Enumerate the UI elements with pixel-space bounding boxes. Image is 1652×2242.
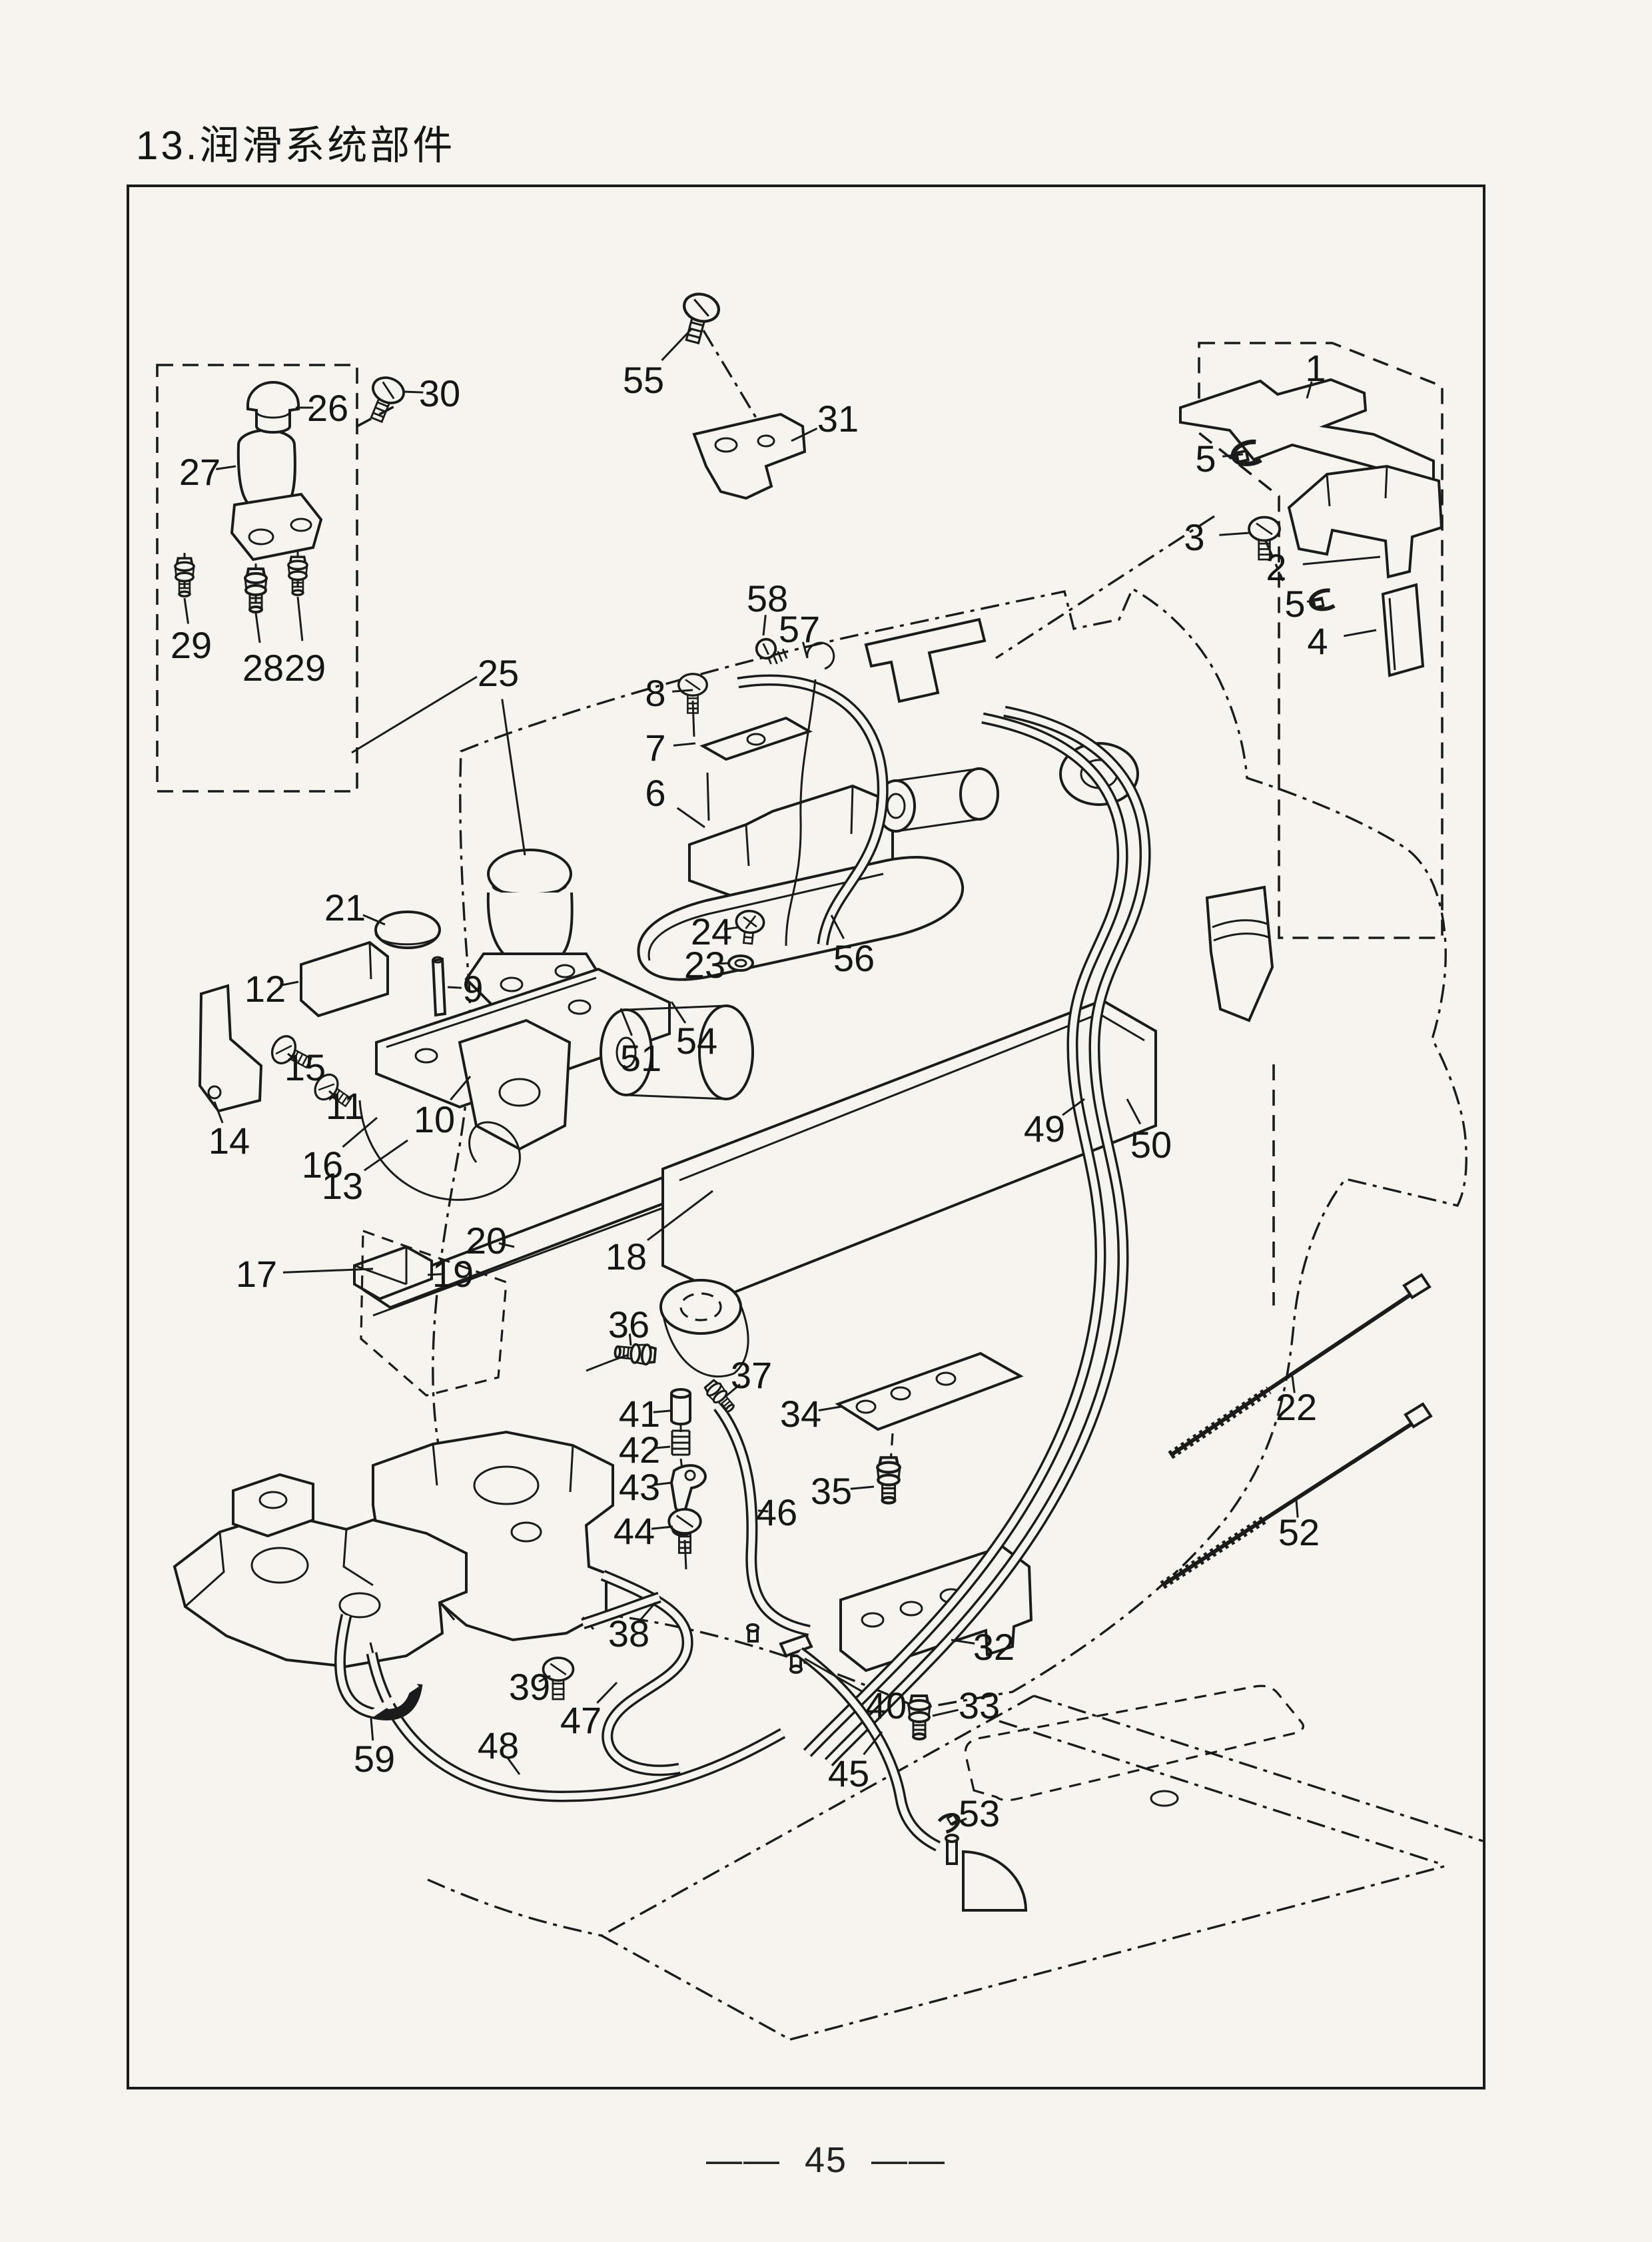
part-label-14: 14: [208, 1102, 250, 1162]
part-number-text: 7: [645, 727, 665, 769]
part-number-text: 45: [828, 1752, 869, 1794]
part-number-text: 32: [973, 1626, 1015, 1668]
part-number-text: 30: [419, 372, 460, 414]
part-label-11: 11: [326, 1085, 364, 1127]
spring-icon: [672, 1431, 689, 1455]
leader-line: [298, 597, 302, 641]
fitting-icon: [245, 569, 266, 612]
part-number-text: 21: [324, 887, 366, 929]
leader-line: [933, 1710, 959, 1716]
lever-31: [694, 414, 805, 498]
lever-43: [671, 1465, 705, 1511]
part-label-21: 21: [324, 887, 385, 929]
part-number-text: 14: [208, 1120, 250, 1162]
part-number-text: 20: [466, 1220, 507, 1262]
part-number-text: 46: [756, 1491, 797, 1533]
leader-line: [662, 329, 691, 360]
leader-line: [851, 1487, 874, 1489]
part-label-12: 12: [244, 968, 298, 1010]
part-number-text: 17: [236, 1253, 277, 1295]
part-number-text: 38: [608, 1613, 649, 1655]
part-label-53: 53: [951, 1792, 1000, 1834]
screw-slot-icon: [362, 373, 408, 426]
part-label-59: 59: [354, 1718, 395, 1780]
part-label-29: 29: [171, 598, 212, 666]
part-label-22: 22: [1276, 1376, 1317, 1428]
part-number-text: 8: [645, 672, 665, 714]
footer-rule-left: ——: [706, 2140, 781, 2180]
part-label-16: 16: [302, 1118, 377, 1186]
tube-clamp-bracket: [1207, 887, 1272, 1020]
leader-line: [448, 987, 462, 988]
part-label-39: 39: [509, 1666, 550, 1708]
part-label-26: 26: [296, 387, 348, 429]
part-label-6: 6: [645, 772, 705, 827]
part-number-text: 50: [1130, 1124, 1172, 1166]
leader-line: [1303, 557, 1380, 564]
part-number-text: 36: [608, 1304, 649, 1345]
part-label-54: 54: [671, 1002, 717, 1062]
part-number-text: 40: [865, 1684, 907, 1726]
footer-rule-right: ——: [871, 2140, 946, 2180]
part-number-text: 3: [1184, 516, 1204, 558]
fitting-icon: [877, 1457, 900, 1503]
part-number-text: 5: [1284, 583, 1305, 625]
part-number-text: 53: [959, 1792, 1000, 1834]
part-number-text: 35: [811, 1470, 852, 1512]
part-number-text: 24: [691, 911, 732, 952]
part-number-text: 34: [780, 1393, 821, 1435]
part-label-30: 30: [403, 372, 460, 414]
leader-line: [673, 743, 695, 745]
rod-22: [1170, 1275, 1430, 1455]
fitting-icon: [909, 1696, 930, 1739]
manual-page: 13.润滑系统部件: [0, 0, 1652, 2242]
part-number-text: 52: [1278, 1511, 1320, 1553]
part-label-37: 37: [726, 1354, 772, 1396]
leader-line: [256, 613, 260, 643]
part-label-46: 46: [756, 1491, 797, 1533]
part-label-27: 27: [179, 451, 236, 493]
leader-line: [677, 808, 705, 827]
part-number-text: 11: [326, 1085, 364, 1127]
part-number-text: 29: [284, 647, 326, 689]
part-label-43: 43: [619, 1466, 671, 1508]
part-number-text: 2: [1266, 546, 1286, 588]
part-label-17: 17: [236, 1253, 373, 1295]
part-number-text: 10: [414, 1098, 455, 1140]
part-number-text: 42: [619, 1429, 660, 1471]
part-number-text: 31: [817, 398, 859, 440]
part-label-9: 9: [448, 968, 484, 1010]
part-number-text: 22: [1276, 1386, 1317, 1428]
part-label-44: 44: [614, 1510, 673, 1552]
leader-line: [1344, 630, 1376, 636]
part-label-36: 36: [608, 1304, 649, 1345]
fitting-icon: [175, 558, 194, 596]
part-number-text: 25: [478, 652, 519, 694]
fitting-icon: [614, 1342, 655, 1365]
part-label-4: 4: [1307, 620, 1376, 662]
part-label-35: 35: [811, 1470, 874, 1512]
part-number-text: 15: [284, 1046, 326, 1088]
footer-number: 45: [805, 2140, 847, 2180]
part-number-text: 26: [307, 387, 348, 429]
part-label-7: 7: [645, 727, 695, 769]
parts-diagram: 1234556789101112131415161718192021222324…: [0, 0, 1652, 2242]
part-number-text: 59: [354, 1738, 395, 1780]
part-number-text: 55: [623, 359, 664, 401]
part-label-25: 25: [478, 652, 525, 855]
part-label-48: 48: [478, 1724, 520, 1774]
part-number-text: 56: [833, 937, 875, 979]
leader-line: [185, 598, 189, 624]
part-number-text: 6: [645, 772, 665, 814]
part-number-text: 9: [462, 968, 483, 1010]
leader-25-left: [352, 677, 477, 753]
part-number-text: 39: [509, 1666, 550, 1708]
part-number-text: 4: [1307, 620, 1328, 662]
plug-icon: [248, 382, 298, 432]
part-label-29: 29: [284, 597, 326, 689]
part-number-text: 49: [1024, 1108, 1065, 1150]
page-number: ——45——: [0, 2139, 1652, 2181]
part-number-text: 16: [302, 1144, 343, 1186]
knee-lifter-parts: [946, 1835, 1026, 1910]
part-number-text: 12: [244, 968, 286, 1010]
part-label-20: 20: [466, 1220, 514, 1262]
rod-52: [1162, 1404, 1431, 1585]
part-number-text: 27: [179, 451, 220, 493]
part-label-28: 28: [242, 613, 284, 689]
part-number-text: 44: [614, 1510, 655, 1552]
leader-line: [819, 1407, 841, 1411]
part-number-text: 5: [1195, 438, 1216, 480]
part-label-33: 33: [933, 1684, 1000, 1726]
part-number-text: 47: [560, 1699, 602, 1741]
part-number-text: 43: [619, 1466, 660, 1508]
part-number-text: 51: [620, 1037, 661, 1079]
part-number-text: 29: [171, 624, 212, 666]
hook-module-blocks: [175, 1432, 613, 1667]
cylinder-icon: [671, 1389, 690, 1424]
part-number-text: 37: [731, 1354, 772, 1396]
part-number-text: 1: [1305, 347, 1326, 389]
part-number-text: 28: [242, 647, 284, 689]
part-label-24: 24: [691, 911, 739, 952]
leader-line: [502, 699, 525, 855]
fitting-icon: [288, 557, 307, 595]
part-label-42: 42: [619, 1429, 670, 1471]
leader-line: [1219, 533, 1250, 535]
part-number-text: 18: [606, 1236, 647, 1278]
part-label-55: 55: [623, 329, 691, 401]
part-number-text: 48: [478, 1724, 519, 1766]
part-label-34: 34: [780, 1393, 841, 1435]
part-number-text: 54: [676, 1020, 717, 1062]
part-label-15: 15: [284, 1046, 326, 1088]
felt-pad-4: [1383, 585, 1423, 675]
part-label-3: 3: [1184, 516, 1250, 558]
part-number-text: 58: [747, 577, 788, 619]
washer-icon: [729, 956, 753, 970]
wick-bracket-2: [1289, 466, 1442, 577]
part-number-text: 33: [959, 1684, 1000, 1726]
